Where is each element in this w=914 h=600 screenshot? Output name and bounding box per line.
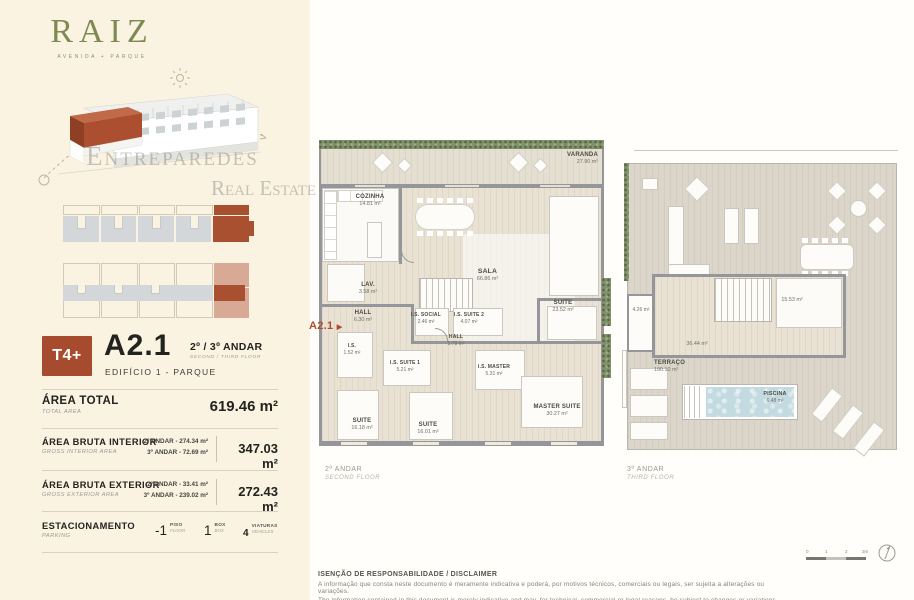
facade-planter [602,278,611,326]
round-table [850,200,867,217]
window-gap [485,442,511,445]
floor-designation-en: SECOND / THIRD FLOOR [190,355,280,360]
parking-label-pt: ESTACIONAMENTO [42,521,135,531]
dining-chairs [417,198,473,203]
scale-tick-0: 0 [806,549,809,554]
divider [42,511,278,512]
typology-badge: T4+ [42,336,92,376]
kitchen-island [367,222,382,258]
disclaimer-line-pt: A informação que consta neste documento … [318,581,796,595]
floorplate-diagram-upper [63,205,249,242]
window-gap [445,185,479,187]
room-label-lav: LAV.3.58 m² [353,282,383,295]
bed [337,390,379,440]
window-gap [341,442,367,445]
side-planter-bar [622,350,627,408]
parking-vehicles-label-en: VEHICLES [252,529,278,534]
building-illustration [28,62,284,202]
interior-room [776,278,842,328]
dining-table [415,204,475,230]
parking-vehicles-label-pt: VIATURAS [252,523,278,528]
divider [42,552,278,553]
arc-start-marker [39,175,49,185]
caption-third-floor: 3º ANDAR THIRD FLOOR [627,466,674,481]
logo-wordmark: RAIZ [44,13,160,51]
scale-tick-2: 2 [845,549,848,554]
highlighted-unit-cell [213,216,249,242]
window-gap [355,185,385,187]
brand-logo: RAIZ AVENIDA + PARQUE [44,13,160,60]
scale-bar: 0 1 2 3m [806,549,876,563]
room-label-is-master: I.S. MASTER5.31 m² [475,364,513,377]
roof-edge-line [634,150,898,151]
pool-deck-lines [684,386,704,418]
room-label-upper-room: 15.53 m² [768,296,816,303]
area-exterior-total: 272.43 m² [220,484,278,514]
area-total-label-pt: ÁREA TOTAL [42,395,119,407]
staircase [419,278,473,312]
outdoor-dining-table [800,244,854,270]
room-label-cozinha: COZINHA14.81 m² [345,194,395,207]
window-gap [413,442,439,445]
area-total-label: ÁREA TOTAL TOTAL AREA [42,395,119,415]
room-label-hall1: HALL6.30 m² [345,310,381,323]
interior-wall [537,298,540,344]
staircase [714,278,772,322]
parking-floor-item: -1PISOFLOOR [155,522,185,540]
building-label: EDIFÍCIO 1 - PARQUE [105,367,216,377]
room-label-piscina: PISCINA6.48 m² [746,391,804,404]
unit-marker-label: A2.1 [309,320,333,332]
parking-vehicles-item: 4VIATURASVEHICLES [243,523,278,541]
parking-floor-label-en: FLOOR [170,528,185,533]
caption-second-floor-en: SECOND FLOOR [325,475,380,481]
floor-designation: 2º / 3º ANDAR SECOND / THIRD FLOOR [190,341,280,360]
disclaimer-title: ISENÇÃO DE RESPONSABILIDADE / DISCLAIMER [318,571,796,578]
area-total-label-en: TOTAL AREA [42,409,119,415]
outdoor-table [642,178,658,190]
storage-box [630,422,668,440]
area-interior-row-1: 2º ANDAR - 274.34 m² [120,436,208,447]
outdoor-sofa [668,206,684,270]
parking-floor-label-pt: PISO [170,522,185,527]
area-total-value: 619.46 m² [160,398,278,415]
disclaimer: ISENÇÃO DE RESPONSABILIDADE / DISCLAIMER… [318,571,796,600]
building-illustration-svg [28,62,284,202]
kitchen-counter [324,190,337,260]
area-interior-total: 347.03 m² [220,441,278,471]
floor-plan-second: A2.1 ▶ VARANDA27.90 m² COZINHA14.81 m² S… [315,138,607,468]
balcony-hedge [319,140,604,149]
area-exterior-row-2: 3º ANDAR - 239.02 m² [120,490,208,501]
terrace-hedge [624,163,629,281]
sofa [549,196,599,296]
room-label-suite1: SUITE16.18 m² [343,418,381,431]
parking-box-label-pt: BOX [215,522,226,527]
room-label-suite2: SUITE16.01 m² [409,422,447,435]
dining-chairs [417,231,473,236]
floorplate-lower-outline-row-1 [63,263,249,287]
window-gap [540,185,570,187]
window-gap [551,442,577,445]
divider [42,389,278,390]
area-exterior-row-1: 2º ANDAR - 33.41 m² [120,479,208,490]
room-label-sala: SALA66.86 m² [465,268,510,282]
floorplate-lower-bar [63,285,213,301]
room-label-is-suite2: I.S. SUITE 24.07 m² [451,312,487,325]
room-label-terraco: TERRAÇO190.10 m² [654,360,724,373]
room-label-is-suite1: I.S. SUITE 15.21 m² [385,360,425,373]
caption-third-floor-pt: 3º ANDAR [627,466,674,473]
floorplate-diagram-lower [63,263,249,318]
room-label-master-suite: MASTER SUITE30.27 m² [533,404,581,417]
sidebar: RAIZ AVENIDA + PARQUE [0,0,310,600]
storage-box [630,395,668,417]
unit-marker-arrow-icon: ▶ [337,324,343,331]
room-label-suite-right: SUITE23.52 m² [541,300,585,313]
parking-vehicles-value: 4 [243,528,249,539]
parking-box-label-en: BOX [215,528,226,533]
divider [42,428,278,429]
sun-lounger [724,208,739,244]
floorplate-upper-outline-row [63,205,249,215]
parking-floor-value: -1 [155,523,167,538]
bed [521,376,583,428]
interior-wall [319,304,411,307]
parking-label-en: PARKING [42,533,135,539]
sun-icon [170,68,190,88]
divider [42,470,278,471]
parking-box-value: 1 [204,523,212,538]
parking-box-item: 1BOXBOX [204,522,226,540]
unit-code: A2.1 [104,329,171,363]
outdoor-dining-chairs [802,238,852,243]
facade-planter [602,334,611,378]
room-label-interior: 36.44 m² [672,340,722,347]
caption-second-floor: 2º ANDAR SECOND FLOOR [325,466,380,481]
room-label-hall2: HALL5.78 m² [439,334,473,347]
parking-label: ESTACIONAMENTO PARKING [42,521,135,539]
logo-tagline: AVENIDA + PARQUE [44,54,160,60]
brochure-page: RAIZ AVENIDA + PARQUE [0,0,914,600]
area-exterior-breakdown: 2º ANDAR - 33.41 m² 3º ANDAR - 239.02 m² [120,479,208,501]
floorplate-upper-block-row [63,216,249,242]
scale-tick-1: 1 [825,549,828,554]
side-room [627,294,654,352]
area-interior-breakdown: 2º ANDAR - 274.34 m² 3º ANDAR - 72.69 m² [120,436,208,458]
room-label-side-room: 4.26 m² [626,306,656,313]
north-arrow-icon [876,542,898,569]
caption-third-floor-en: THIRD FLOOR [627,475,674,481]
unit-marker: A2.1 ▶ [309,320,342,332]
floorplate-lower-highlight-bar [214,285,245,301]
divider [216,436,217,462]
scale-tick-3: 3m [862,549,868,554]
floor-designation-pt: 2º / 3º ANDAR [190,341,280,353]
floor-plan-third: 36.44 m² 15.53 m² 4.26 m² TERRAÇO190.10 … [622,148,914,464]
divider [216,479,217,505]
sun-lounger [744,208,759,244]
caption-second-floor-pt: 2º ANDAR [325,466,380,473]
room-label-is-small: I.S.1.52 m² [335,343,369,356]
room-label-is-social: I.S. SOCIAL2.46 m² [409,312,443,325]
room-label-varanda: VARANDA27.90 m² [510,152,598,165]
area-interior-row-2: 3º ANDAR - 72.69 m² [120,447,208,458]
